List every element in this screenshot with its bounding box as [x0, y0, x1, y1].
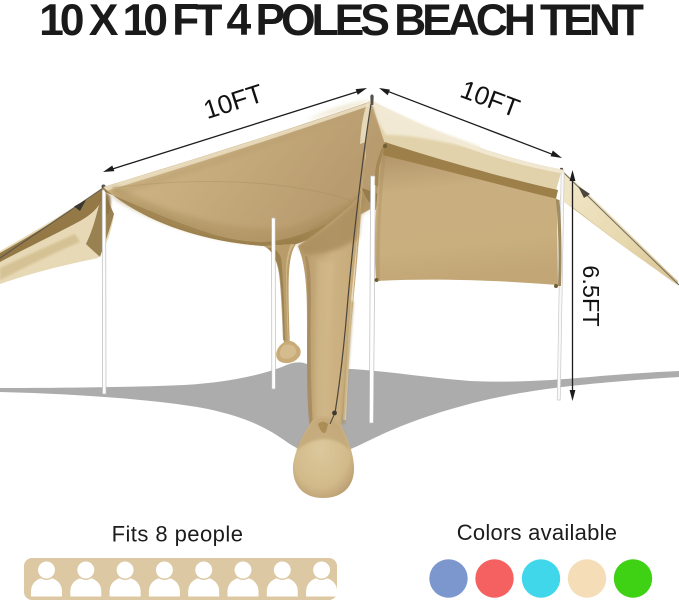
svg-text:6.5FT: 6.5FT — [578, 265, 604, 326]
svg-text:10FT: 10FT — [456, 74, 523, 123]
svg-text:Fits 8 people: Fits 8 people — [112, 522, 244, 547]
svg-text:10FT: 10FT — [200, 78, 267, 125]
svg-text:Colors available: Colors available — [457, 520, 618, 545]
